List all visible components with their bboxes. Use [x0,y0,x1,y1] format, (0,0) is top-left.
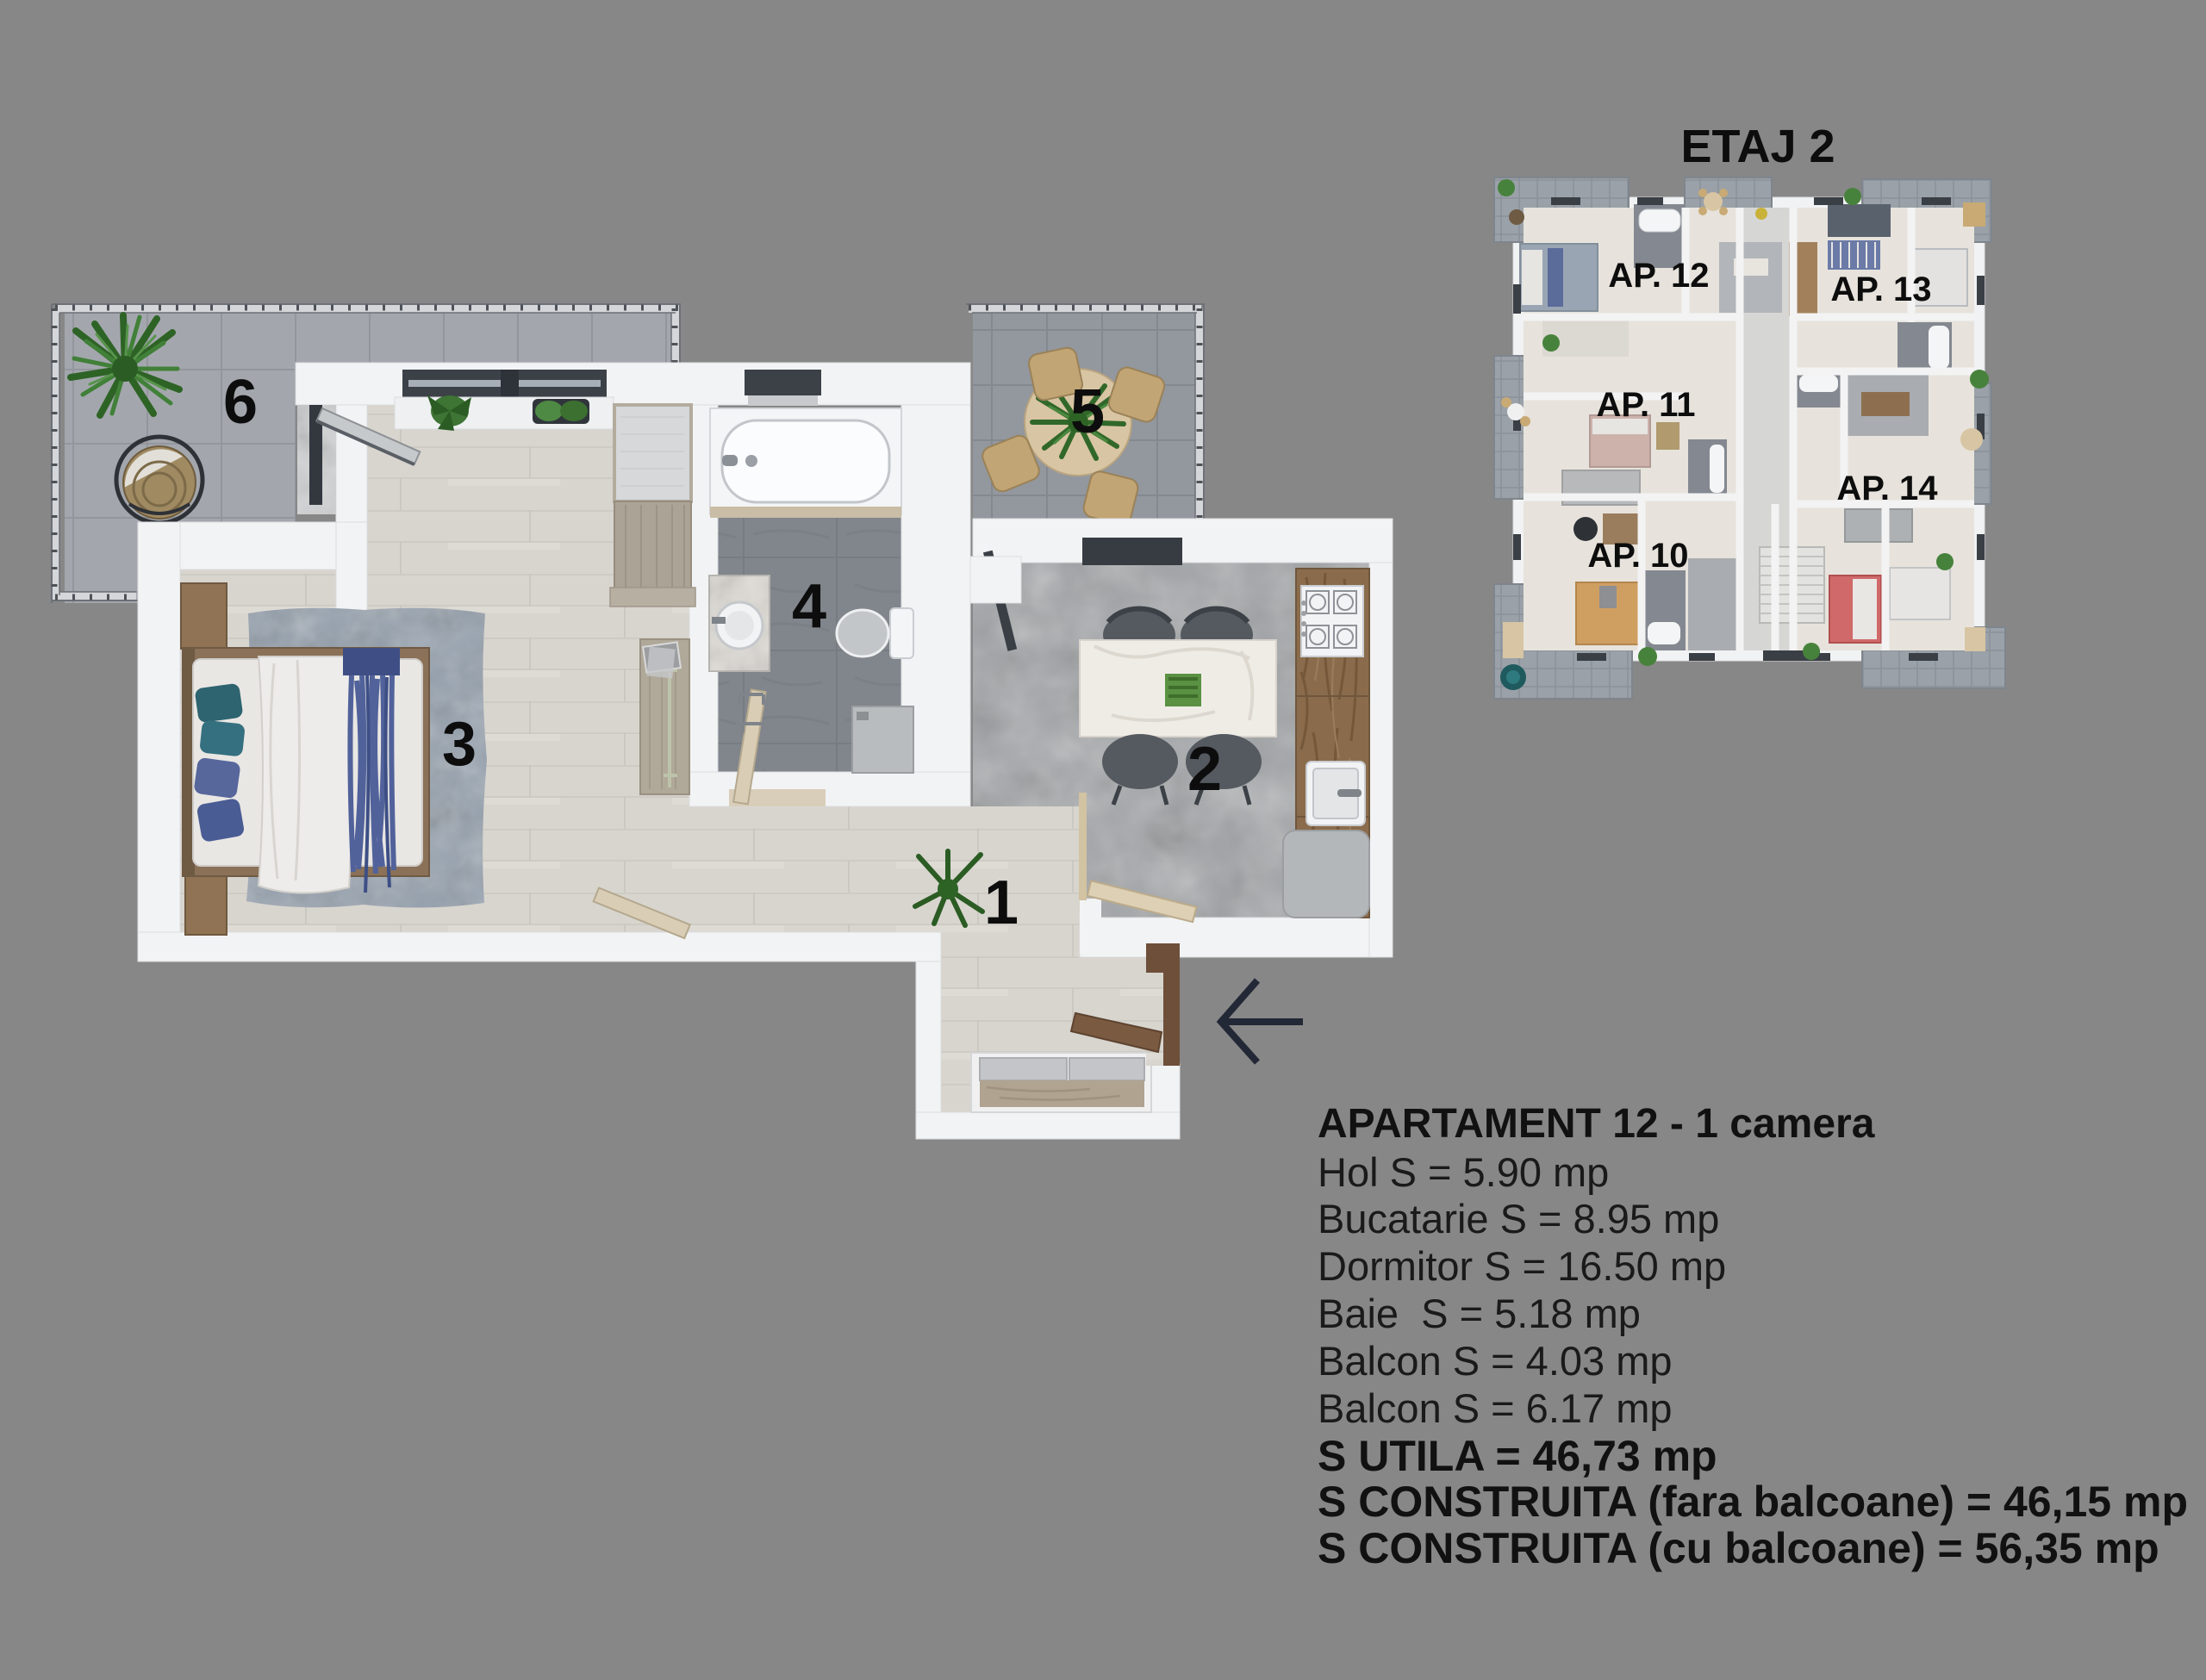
svg-text:Dormitor S = 16.50 mp: Dormitor S = 16.50 mp [1318,1243,1726,1289]
svg-text:AP. 13: AP. 13 [1830,271,1931,308]
svg-text:Balcon S = 4.03 mp: Balcon S = 4.03 mp [1318,1338,1673,1384]
svg-text:4: 4 [792,572,826,641]
svg-text:Hol S = 5.90 mp: Hol S = 5.90 mp [1318,1149,1609,1195]
svg-text:3: 3 [442,710,477,779]
svg-text:1: 1 [984,868,1019,937]
svg-text:6: 6 [223,368,258,437]
svg-text:AP. 12: AP. 12 [1608,257,1709,295]
svg-text:Bucatarie S = 8.95 mp: Bucatarie S = 8.95 mp [1318,1196,1719,1241]
svg-text:S CONSTRUITA (fara balcoane) =: S CONSTRUITA (fara balcoane) = 46,15 mp [1318,1478,2188,1526]
svg-text:AP. 11: AP. 11 [1597,386,1696,424]
svg-text:S UTILA = 46,73 mp: S UTILA = 46,73 mp [1318,1432,1717,1480]
svg-text:Balcon S = 6.17 mp: Balcon S = 6.17 mp [1318,1385,1673,1431]
svg-text:AP. 10: AP. 10 [1587,537,1688,575]
svg-text:Baie S = 5.18 mp: Baie S = 5.18 mp [1318,1291,1641,1336]
svg-text:ETAJ 2: ETAJ 2 [1680,121,1835,172]
svg-text:S CONSTRUITA (cu balcoane) = 5: S CONSTRUITA (cu balcoane) = 56,35 mp [1318,1524,2159,1572]
svg-text:2: 2 [1187,735,1222,804]
svg-text:APARTAMENT 12 - 1 camera: APARTAMENT 12 - 1 camera [1318,1101,1875,1147]
svg-text:AP. 14: AP. 14 [1836,470,1938,507]
svg-text:5: 5 [1070,377,1105,446]
